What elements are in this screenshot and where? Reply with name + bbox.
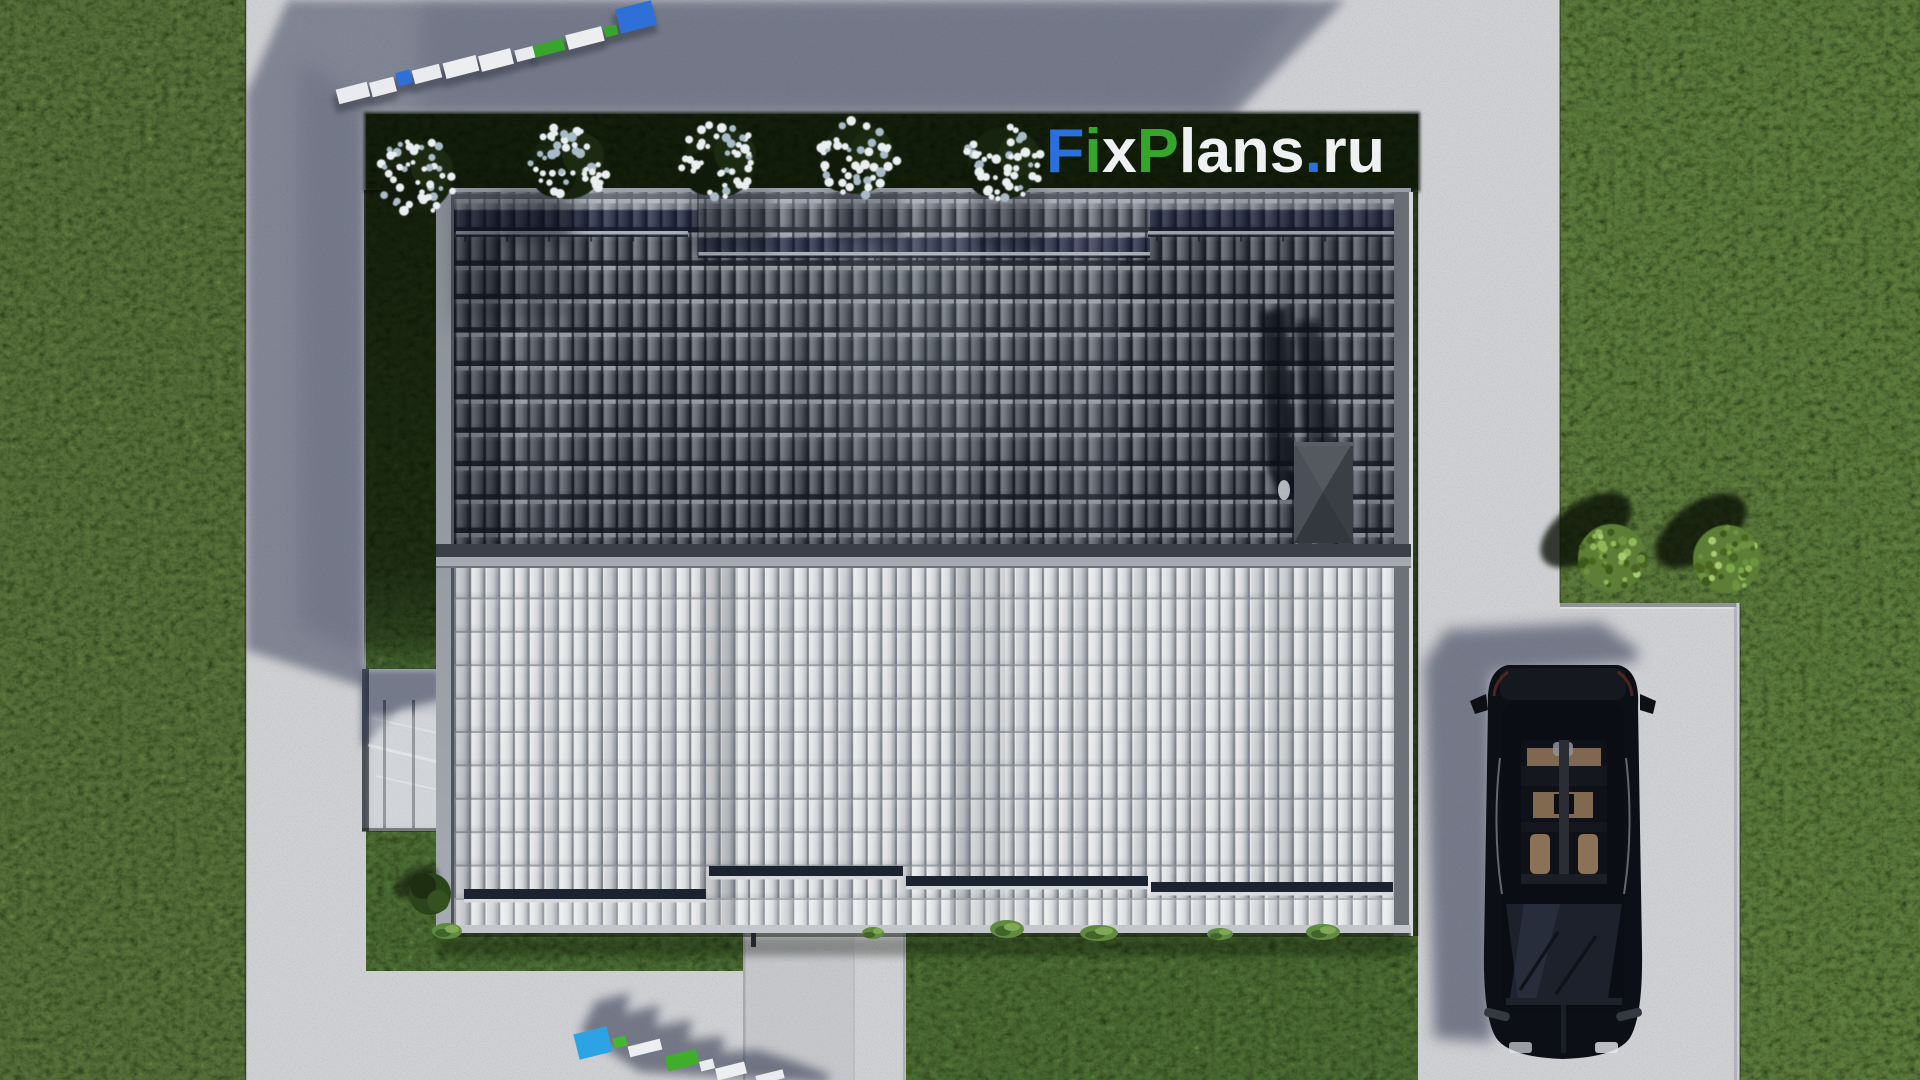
svg-text:FixPlans.ru: FixPlans.ru (1046, 117, 1385, 186)
